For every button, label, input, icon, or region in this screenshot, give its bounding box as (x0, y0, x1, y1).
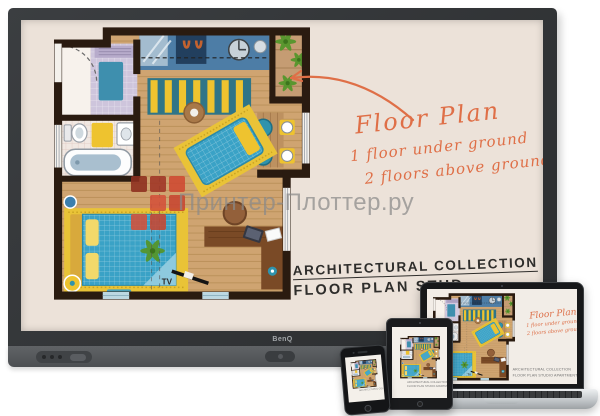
laptop-lid-notch (484, 398, 520, 404)
phone-home-button[interactable] (364, 404, 372, 412)
tablet-camera-icon (419, 322, 421, 324)
laptop-camera-icon (501, 285, 503, 287)
display-power-button[interactable] (265, 351, 295, 362)
phone-display[interactable]: ARCHITECTURAL COLLECTION (345, 355, 385, 403)
tablet-floor-plan (400, 336, 440, 379)
display-control-buttons[interactable] (36, 351, 92, 363)
laptop-caption: ARCHITECTURAL COLLECTION FLOOR PLAN STUD… (497, 368, 575, 380)
benq-logo: BenQ (272, 336, 292, 343)
phone-floor-plan (350, 359, 378, 389)
laptop-annotation: Floor Plan 1 floor under ground 2 floors… (525, 306, 577, 338)
tablet: ARCHITECTURAL COLLECTION FLOOR PLAN STUD… (386, 318, 453, 410)
phone-speaker-icon (357, 351, 367, 354)
phone-caption: ARCHITECTURAL COLLECTION (359, 388, 373, 391)
tablet-home-button[interactable] (417, 401, 423, 407)
smartphone: ARCHITECTURAL COLLECTION (339, 344, 391, 416)
tablet-caption: ARCHITECTURAL COLLECTION FLOOR PLAN STUD… (392, 381, 447, 389)
tablet-display[interactable]: ARCHITECTURAL COLLECTION FLOOR PLAN STUD… (392, 327, 447, 398)
phone-camera-icon (353, 352, 355, 354)
